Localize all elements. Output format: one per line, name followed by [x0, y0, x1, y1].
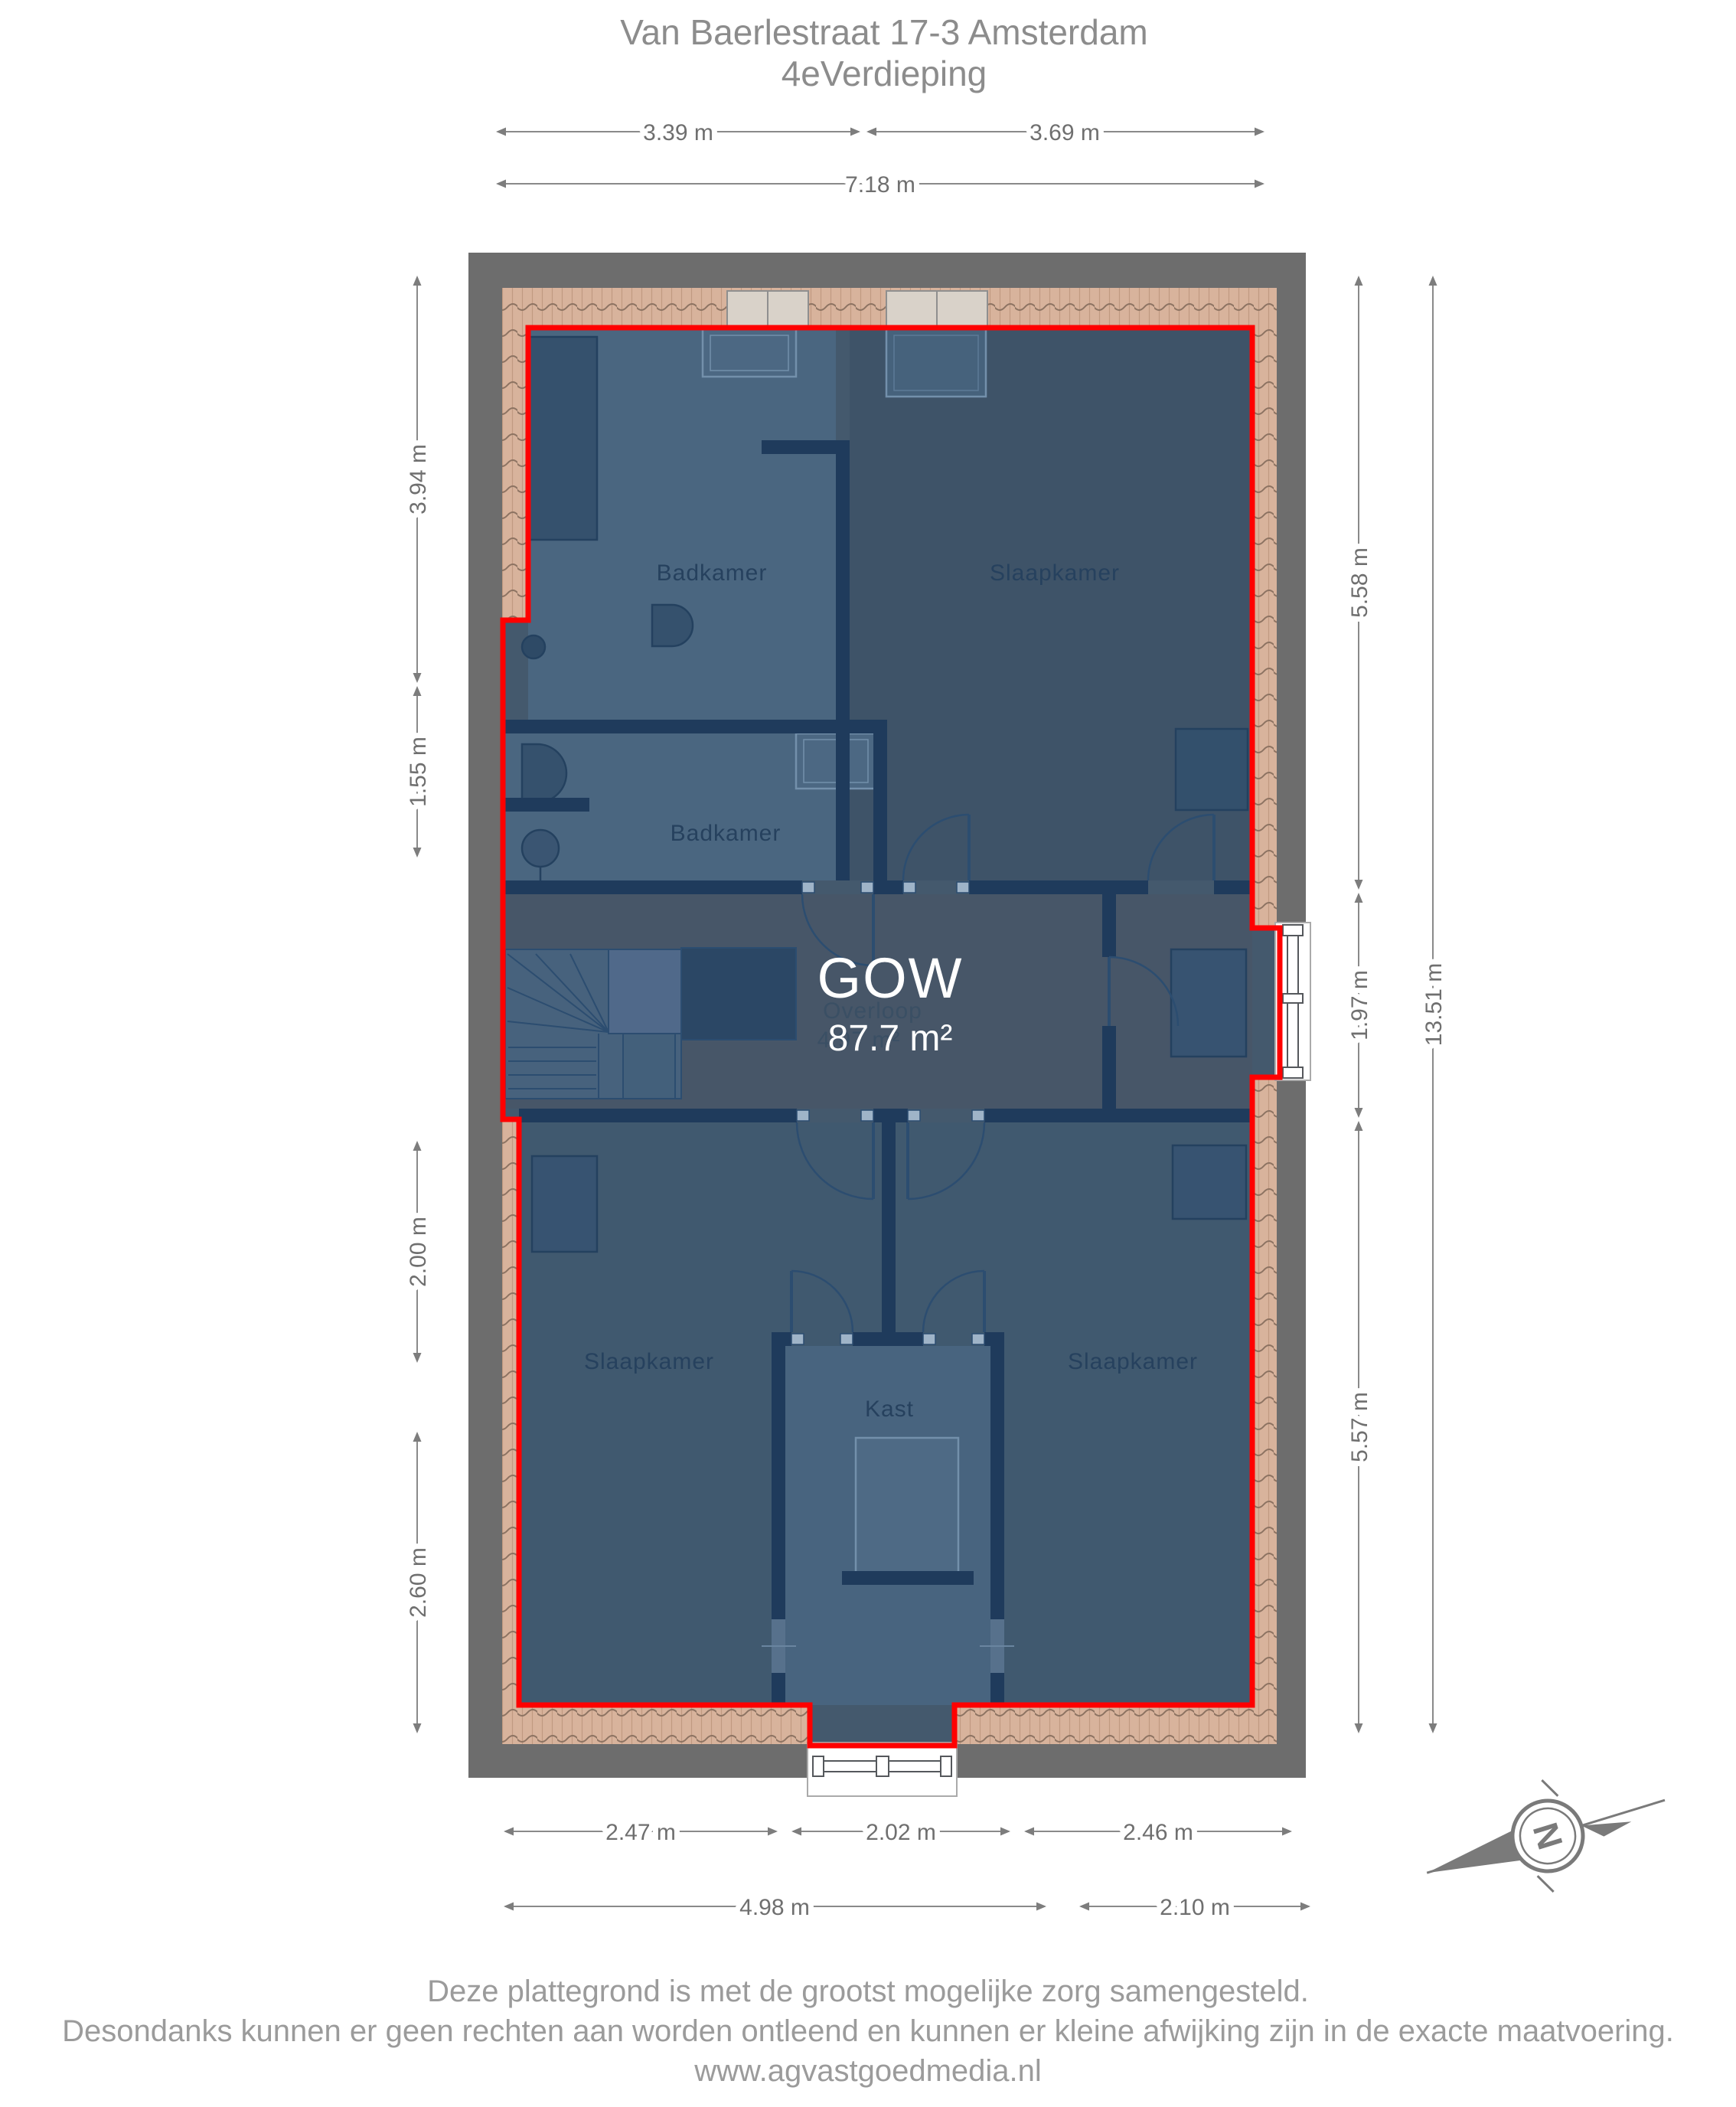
dim-left-3: 2.00 m: [406, 1217, 431, 1287]
dim-bottom-3: 2.46 m: [1123, 1820, 1193, 1845]
footer-line2: Desondanks kunnen er geen rechten aan wo…: [62, 2014, 1674, 2048]
page-title: Van Baerlestraat 17-3 Amsterdam 4eVerdie…: [620, 12, 1147, 93]
room-label-slaapkamer-top: Slaapkamer: [990, 560, 1120, 586]
gow-label: GOW: [817, 946, 964, 1010]
floorplan-figure: Van Baerlestraat 17-3 Amsterdam 4eVerdie…: [0, 0, 1736, 2107]
dim-bottom-total-2: 2.10 m: [1160, 1895, 1230, 1920]
dim-left-4: 2.60 m: [406, 1547, 431, 1618]
gow-area-label: 87.7 m²: [828, 1018, 953, 1059]
closet: [886, 329, 986, 397]
dim-right-3: 5.57 m: [1347, 1392, 1372, 1462]
floorplan-page: Van Baerlestraat 17-3 Amsterdam 4eVerdie…: [0, 0, 1736, 2107]
room-label-badkamer-mid: Badkamer: [671, 821, 782, 846]
closet: [1173, 1145, 1246, 1219]
room-label-slaapkamer-left: Slaapkamer: [584, 1349, 714, 1374]
washbasin: [522, 830, 559, 867]
room-label-badkamer-top: Badkamer: [657, 560, 768, 586]
drain: [522, 635, 545, 658]
dim-right-2: 1.97 m: [1347, 970, 1372, 1040]
cabinet: [1171, 949, 1246, 1057]
closet: [532, 1156, 597, 1252]
dim-right-total: 13.51 m: [1421, 963, 1447, 1046]
footer-disclaimer: Deze plattegrond is met de grootst mogel…: [62, 1975, 1674, 2088]
dim-bottom-1: 2.47 m: [605, 1820, 676, 1845]
title-line2: 4eVerdieping: [782, 54, 987, 93]
footer-line1: Deze plattegrond is met de grootst mogel…: [427, 1975, 1309, 2008]
compass-icon: N: [1411, 1747, 1681, 1926]
window: [808, 1743, 957, 1796]
dim-top-2: 3.69 m: [1030, 120, 1100, 145]
vanity: [703, 329, 796, 377]
dim-top-total: 7.18 m: [845, 172, 915, 198]
dim-left-1: 3.94 m: [406, 444, 431, 514]
room-label-kast: Kast: [865, 1396, 914, 1422]
title-line1: Van Baerlestraat 17-3 Amsterdam: [620, 12, 1147, 52]
dim-bottom-total-1: 4.98 m: [739, 1895, 810, 1920]
dim-top-1: 3.39 m: [643, 120, 713, 145]
dim-right-1: 5.58 m: [1347, 547, 1372, 618]
shower-bath: [530, 337, 597, 540]
dim-bottom-2: 2.02 m: [866, 1820, 936, 1845]
wardrobe-block: [856, 1438, 958, 1583]
closet: [1176, 729, 1248, 810]
footer-line3: www.agvastgoedmedia.nl: [693, 2054, 1042, 2088]
dim-left-2: 1.55 m: [406, 737, 431, 807]
toilet: [652, 605, 693, 646]
room-label-slaapkamer-right: Slaapkamer: [1068, 1349, 1198, 1374]
